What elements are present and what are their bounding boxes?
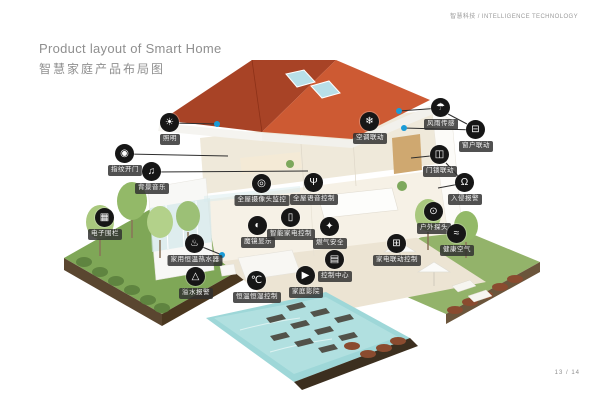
page-number: 13 / 14: [555, 370, 580, 376]
slide: 智慧科技 / INTELLIGENCE TECHNOLOGY Product l…: [0, 0, 600, 409]
house-illustration: [0, 0, 600, 409]
